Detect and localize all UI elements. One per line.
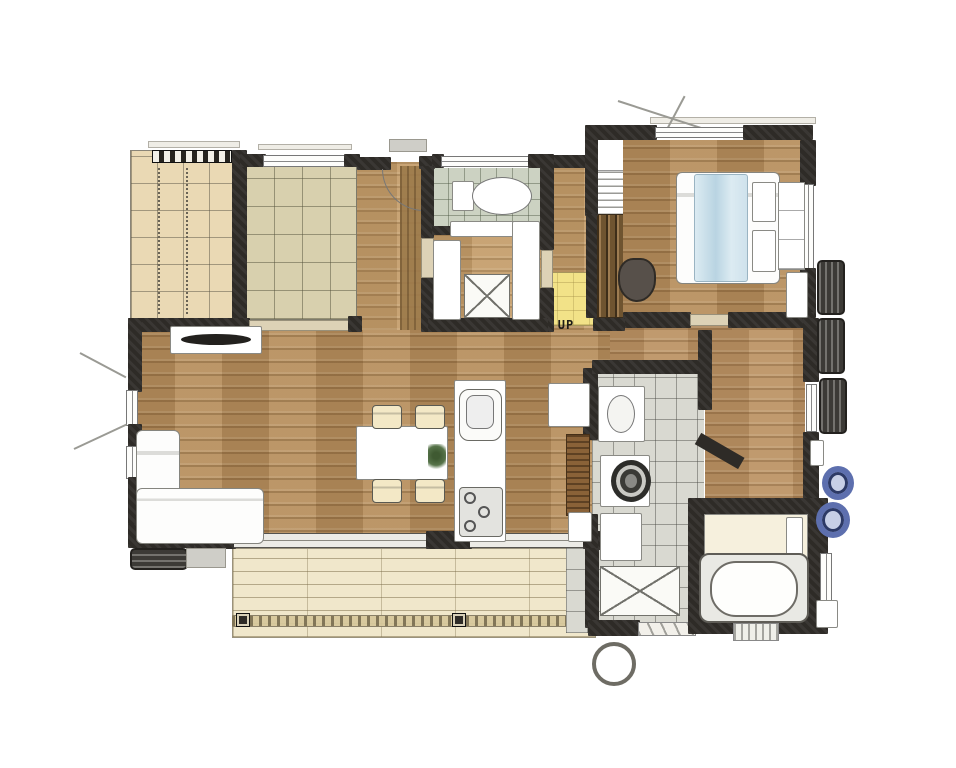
bath-window-east: [820, 553, 832, 601]
washroom-pocket-door: [566, 434, 590, 516]
deck-runner: [232, 615, 596, 627]
toilet-tank: [452, 181, 474, 211]
dining-chair: [415, 479, 445, 503]
washer-drum: [611, 460, 651, 502]
bedroom-closet: [786, 272, 808, 318]
hose-ring: [592, 642, 636, 686]
bathtub: [710, 561, 798, 617]
corridor-floor: [705, 330, 805, 510]
wall: [743, 125, 813, 140]
wall: [348, 316, 362, 332]
tv: [181, 334, 251, 345]
washroom-cabinet: [600, 513, 642, 561]
ldk-side-cabinet: [568, 512, 592, 542]
wall: [585, 128, 598, 216]
sofa-body: [136, 488, 264, 544]
ac-outdoor-unit: [817, 260, 845, 315]
wall: [428, 318, 548, 332]
wall: [592, 360, 710, 374]
wall: [698, 330, 712, 410]
washroom-mat: [600, 566, 680, 616]
utility-box: [810, 440, 824, 466]
bedroom-chair: [618, 258, 656, 302]
storage-cabinet: [433, 240, 461, 320]
bed-pillow: [752, 182, 776, 222]
tatami-window: [263, 155, 347, 167]
toilet-bowl: [472, 177, 532, 215]
storage-cabinet: [450, 221, 516, 237]
toilet-door: [541, 250, 553, 288]
stove-burner: [464, 520, 476, 532]
entrance-porch-step: [389, 139, 427, 152]
wall: [588, 620, 640, 636]
window-vent-line: [80, 352, 127, 378]
corridor-window-east: [806, 384, 817, 432]
tatami-sliding-door: [249, 320, 349, 331]
dining-chair: [415, 405, 445, 429]
bathroom-door: [786, 517, 803, 557]
hose-reel: [822, 466, 854, 500]
ac-outdoor-unit: [817, 318, 845, 374]
table-plant: [428, 444, 446, 470]
stairs-up-label: UP: [548, 317, 584, 332]
wall: [585, 548, 599, 628]
engawa-dot-strip: [186, 168, 188, 314]
engawa-floor: [130, 150, 236, 320]
ldk-side-cabinet: [548, 383, 590, 427]
stove-burner: [464, 492, 476, 504]
garden-step: [186, 548, 226, 568]
stair-treads: [597, 170, 624, 216]
closet-shelf-band: [152, 150, 232, 163]
engawa-dot-strip: [158, 168, 160, 314]
kitchen-sink: [466, 395, 494, 429]
ac-outdoor-unit: [819, 378, 847, 434]
wall: [585, 125, 657, 140]
bath-vent-unit: [816, 600, 838, 628]
tatami-room-floor: [245, 162, 357, 320]
bath-mat: [733, 623, 779, 641]
wall: [800, 140, 816, 186]
outdoor-unit: [130, 548, 188, 570]
bed-duvet: [694, 174, 748, 282]
wall: [593, 318, 625, 331]
bedroom-window-north: [655, 127, 745, 138]
deck-post: [452, 613, 466, 627]
vanity-basin: [607, 395, 635, 433]
hose-reel: [816, 502, 850, 538]
dining-chair: [372, 479, 402, 503]
wall: [232, 150, 247, 320]
wall: [586, 214, 597, 318]
bed-pillow: [752, 230, 776, 272]
living-window-west: [126, 390, 138, 426]
toilet-window: [441, 156, 531, 167]
eave-line: [148, 141, 240, 148]
dining-chair: [372, 405, 402, 429]
bedroom-closet: [778, 182, 805, 270]
wall: [540, 154, 554, 250]
deck-post: [236, 613, 250, 627]
storage-hatch: [464, 274, 510, 318]
floor-plan-canvas: UP: [0, 0, 956, 768]
wall: [128, 318, 142, 392]
bedroom-door: [690, 314, 730, 326]
eave-line: [258, 144, 352, 150]
window-vent-line: [74, 424, 127, 450]
storage-cabinet: [512, 221, 540, 320]
wall: [623, 312, 691, 328]
stove-burner: [478, 506, 490, 518]
